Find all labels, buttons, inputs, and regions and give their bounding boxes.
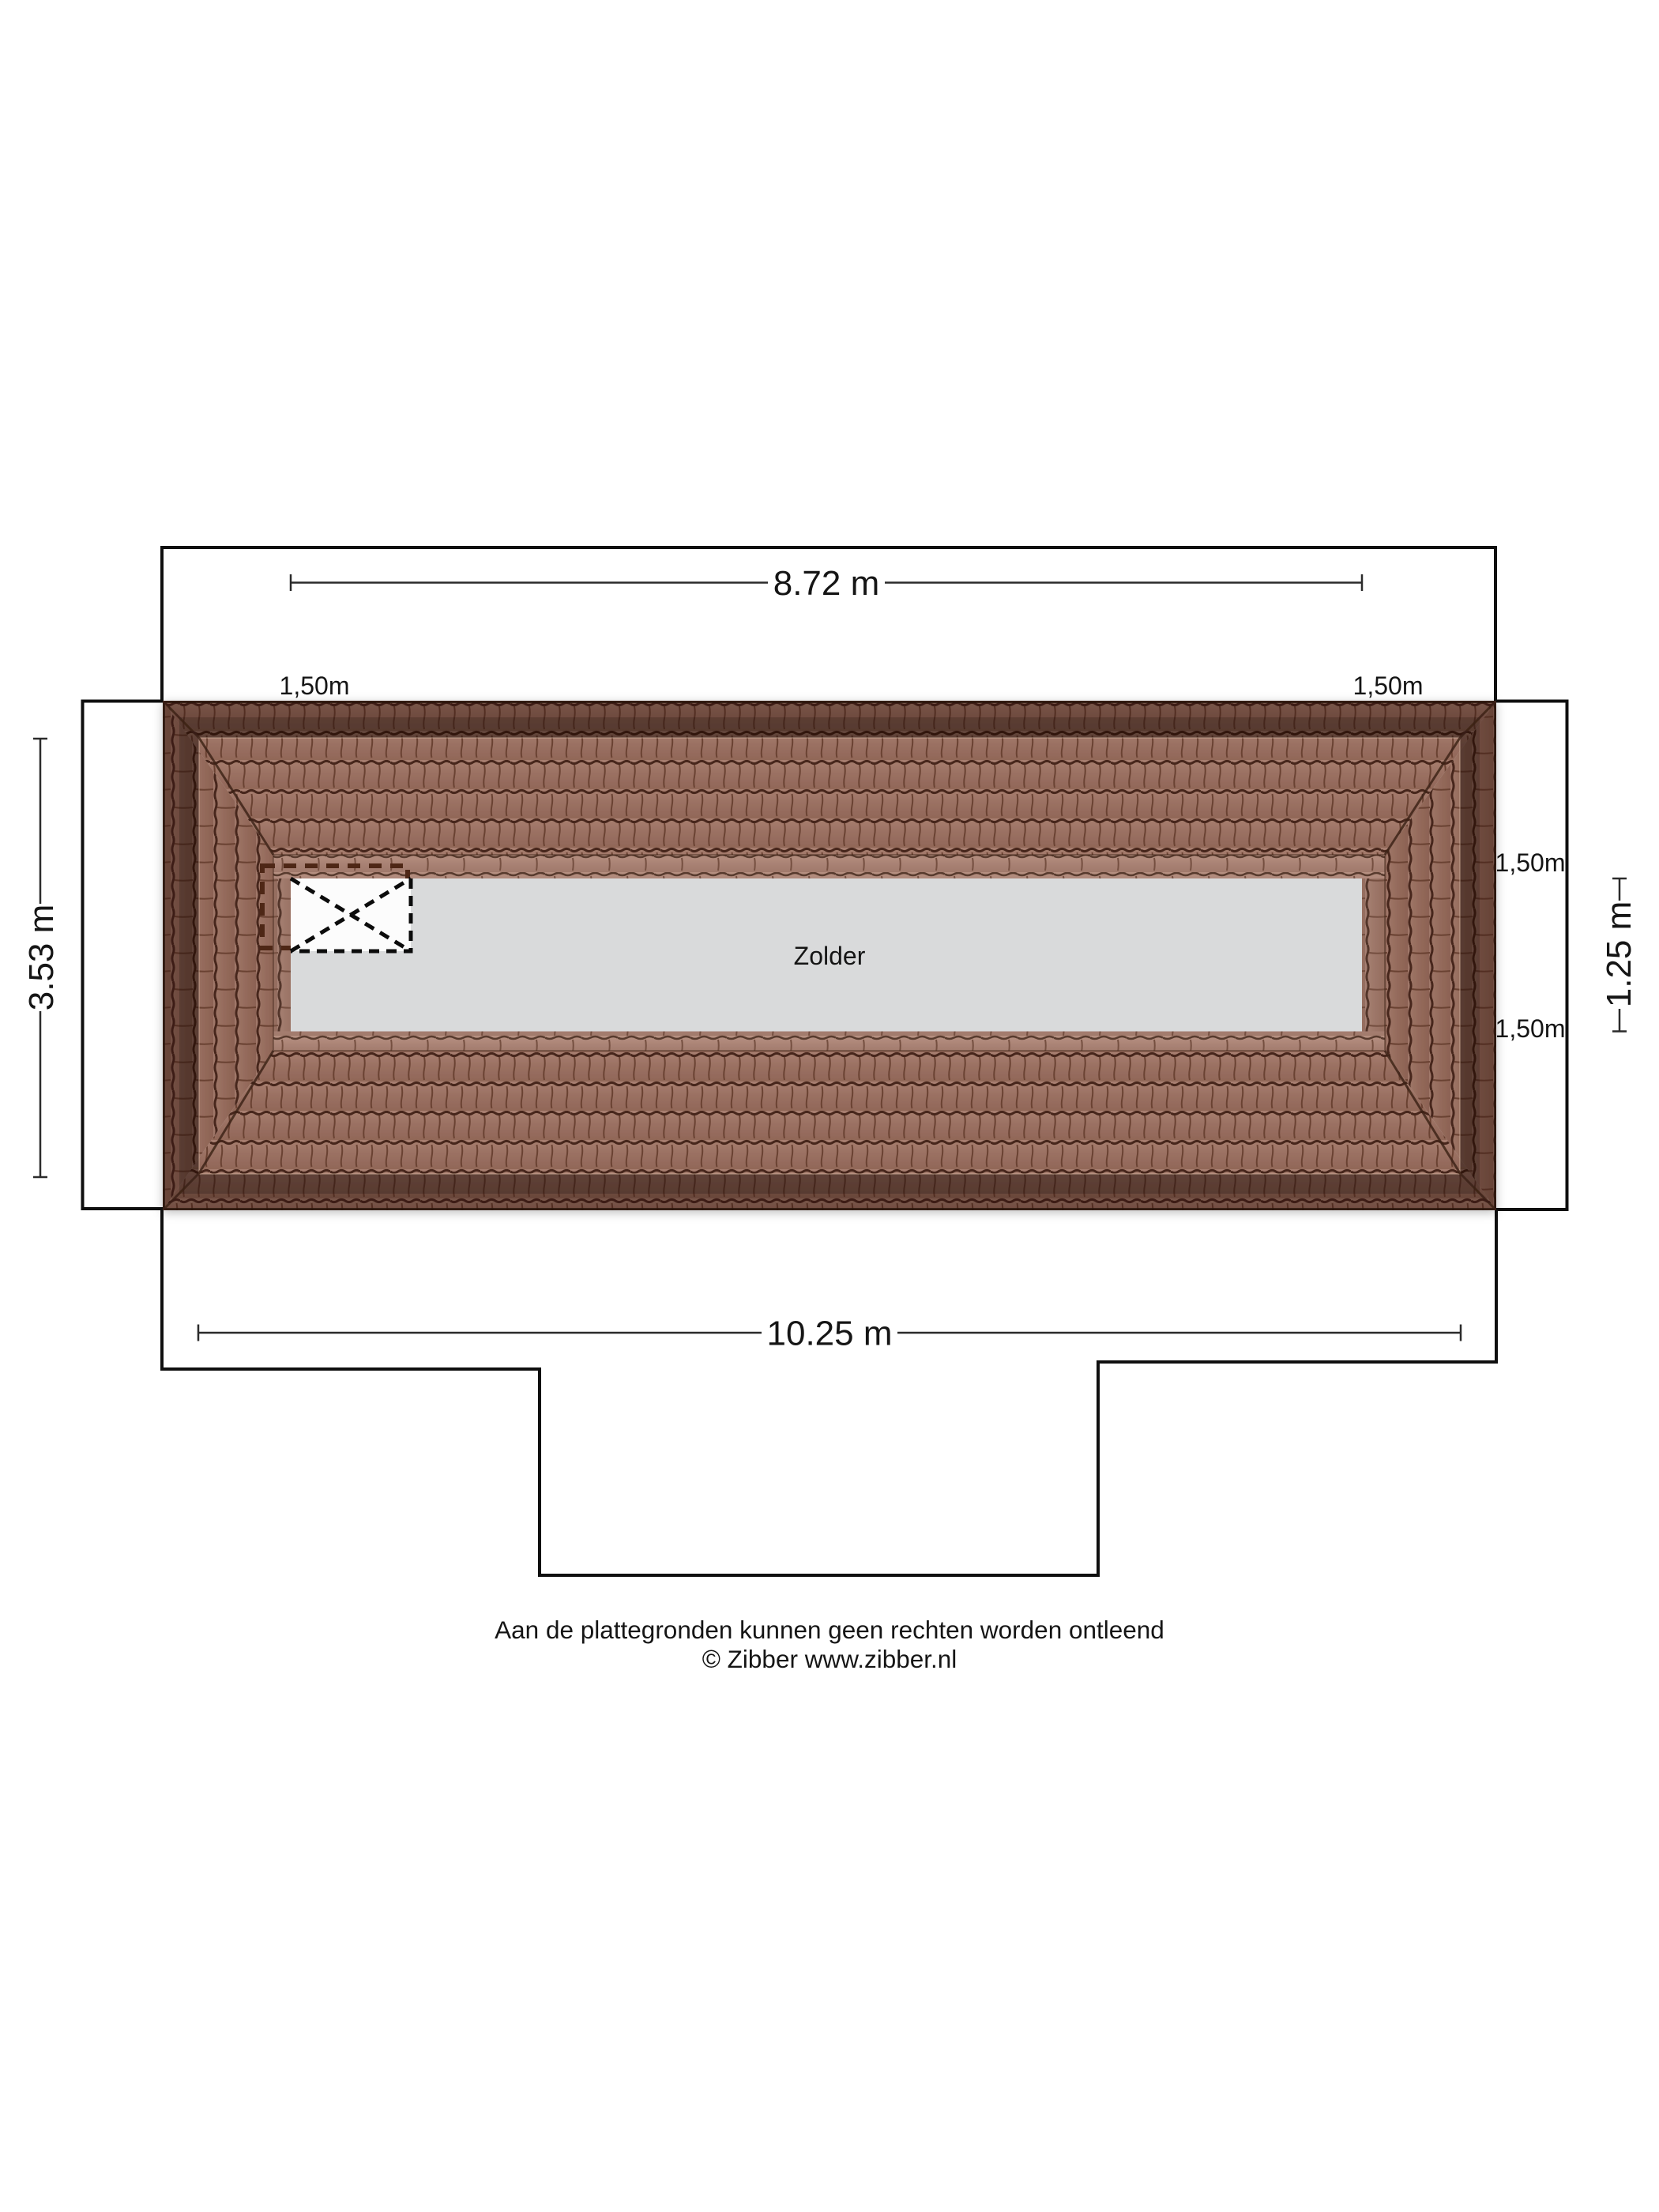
svg-text:1,50m: 1,50m <box>1495 848 1566 877</box>
svg-text:© Zibber www.zibber.nl: © Zibber www.zibber.nl <box>702 1645 957 1673</box>
svg-text:1.25 m: 1.25 m <box>1600 901 1638 1008</box>
svg-text:1,50m: 1,50m <box>1353 671 1424 700</box>
svg-text:Aan de plattegronden kunnen ge: Aan de plattegronden kunnen geen rechten… <box>495 1616 1164 1644</box>
svg-text:10.25 m: 10.25 m <box>767 1315 893 1353</box>
svg-text:8.72 m: 8.72 m <box>773 564 880 603</box>
svg-text:1,50m: 1,50m <box>280 671 350 700</box>
svg-text:3.53 m: 3.53 m <box>22 905 61 1011</box>
svg-text:Zolder: Zolder <box>794 942 866 970</box>
svg-text:1,50m: 1,50m <box>1495 1014 1566 1043</box>
